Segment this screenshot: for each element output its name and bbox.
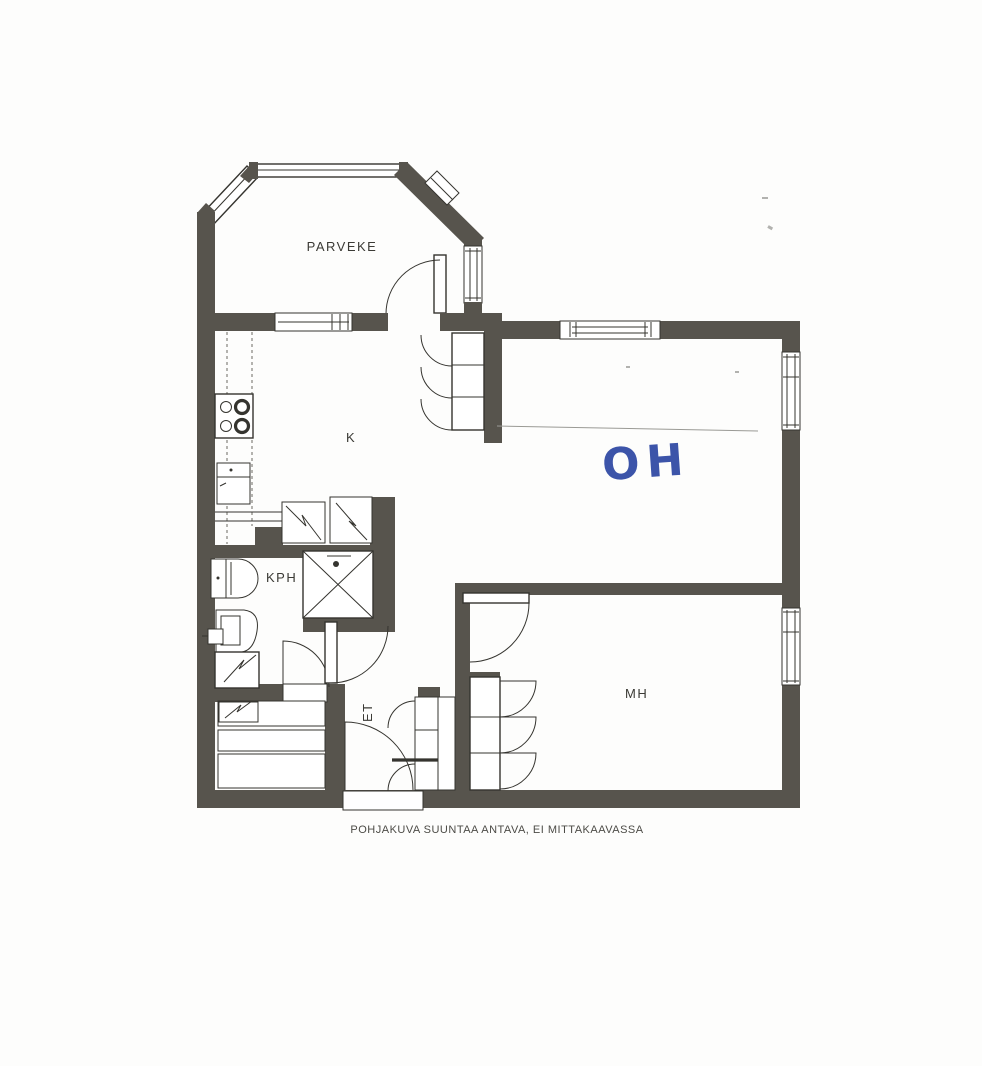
scan-fold-line	[497, 426, 758, 431]
hall-door-leaf	[325, 622, 337, 683]
balcony: PARVEKE	[197, 162, 484, 331]
closet-door-swing	[500, 681, 536, 717]
closet-door-swing	[388, 764, 415, 791]
cabinet-door-swing	[421, 399, 452, 430]
balcony-window-right	[464, 246, 482, 303]
floor-plan-drawing: PARVEKE	[0, 0, 982, 1066]
hall-door-swing	[331, 626, 388, 683]
kitchen-cabinet	[452, 333, 484, 430]
living-room: OH	[497, 426, 758, 491]
livingroom-label-handwritten: OH	[600, 434, 692, 491]
entrance-doorway	[343, 791, 423, 810]
kitchen: K	[215, 332, 484, 544]
cabinet-door-swing	[421, 367, 452, 398]
wall-right	[782, 430, 800, 608]
closet-door-swing	[500, 753, 536, 789]
bedroom-closet	[470, 677, 500, 790]
balcony-label: PARVEKE	[307, 239, 378, 254]
storage-closet	[218, 701, 325, 788]
kitchen-sink	[217, 463, 250, 504]
bathroom-label: KPH	[266, 570, 297, 585]
shelf	[218, 730, 325, 751]
bedroom-label: MH	[625, 686, 648, 701]
bedroom-right-window	[782, 608, 800, 685]
wall-hall-bedroom	[455, 595, 470, 790]
counter-lines	[215, 512, 283, 527]
kitchen-label: K	[346, 430, 356, 445]
closet-door-swing	[388, 701, 415, 728]
bedroom: MH	[463, 593, 648, 790]
livingroom-right-window	[782, 352, 800, 430]
bathroom-door-swing	[283, 641, 329, 687]
balcony-door-leaf	[434, 255, 446, 313]
caption-text: POHJAKUVA SUUNTAA ANTAVA, EI MITTAKAAVAS…	[350, 824, 643, 836]
hallway-label: ET	[360, 702, 375, 722]
shelf	[218, 754, 325, 788]
wall-right	[782, 321, 800, 352]
faucet	[208, 629, 223, 644]
bathroom-doorway	[283, 684, 327, 702]
scan-specks	[626, 197, 773, 373]
wall-right	[782, 685, 800, 790]
entrance-door-swing	[345, 722, 413, 790]
cabinet-door-swing	[421, 335, 452, 366]
bedroom-door-swing	[470, 603, 529, 662]
scanned-floor-plan-page: PARVEKE	[0, 0, 982, 1066]
bedroom-door-leaf	[463, 593, 529, 603]
railing-post	[249, 162, 258, 179]
hall-closet	[415, 697, 438, 790]
hall-closet-side	[438, 697, 455, 790]
wall-bottom	[197, 790, 800, 808]
closet-door-swing	[500, 717, 536, 753]
wall-left	[197, 212, 215, 808]
wall-kitchen-livingroom	[484, 321, 502, 443]
